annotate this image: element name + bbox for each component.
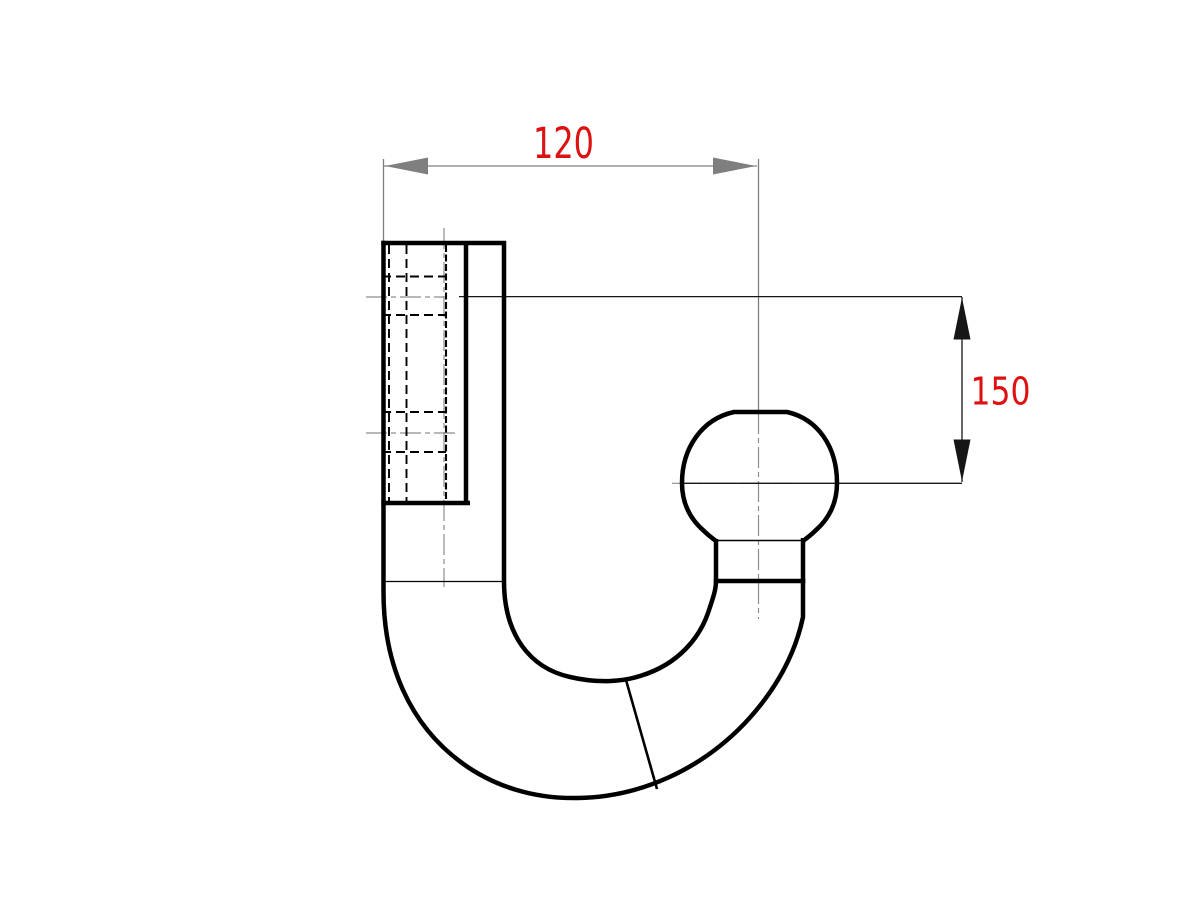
arrowhead-right-icon <box>713 158 756 175</box>
part-outline <box>381 241 837 798</box>
tow-ball-outline <box>682 412 837 541</box>
dimension-horizontal: 120 <box>384 119 759 410</box>
dimension-label-width: 120 <box>533 119 594 169</box>
hook-section-split-line <box>626 680 657 789</box>
arrowhead-down-icon <box>954 440 971 482</box>
arrowhead-left-icon <box>385 158 428 175</box>
hidden-lines <box>382 245 446 501</box>
shank-top-and-inner-curve <box>381 243 716 681</box>
dimension-label-height: 150 <box>971 370 1031 414</box>
arrowhead-up-icon <box>954 298 971 340</box>
technical-drawing-page: 120 150 <box>0 0 1200 900</box>
dimension-vertical: 150 <box>459 297 1031 484</box>
tow-hook-technical-drawing: 120 150 <box>0 0 1200 900</box>
centerlines <box>366 228 792 619</box>
